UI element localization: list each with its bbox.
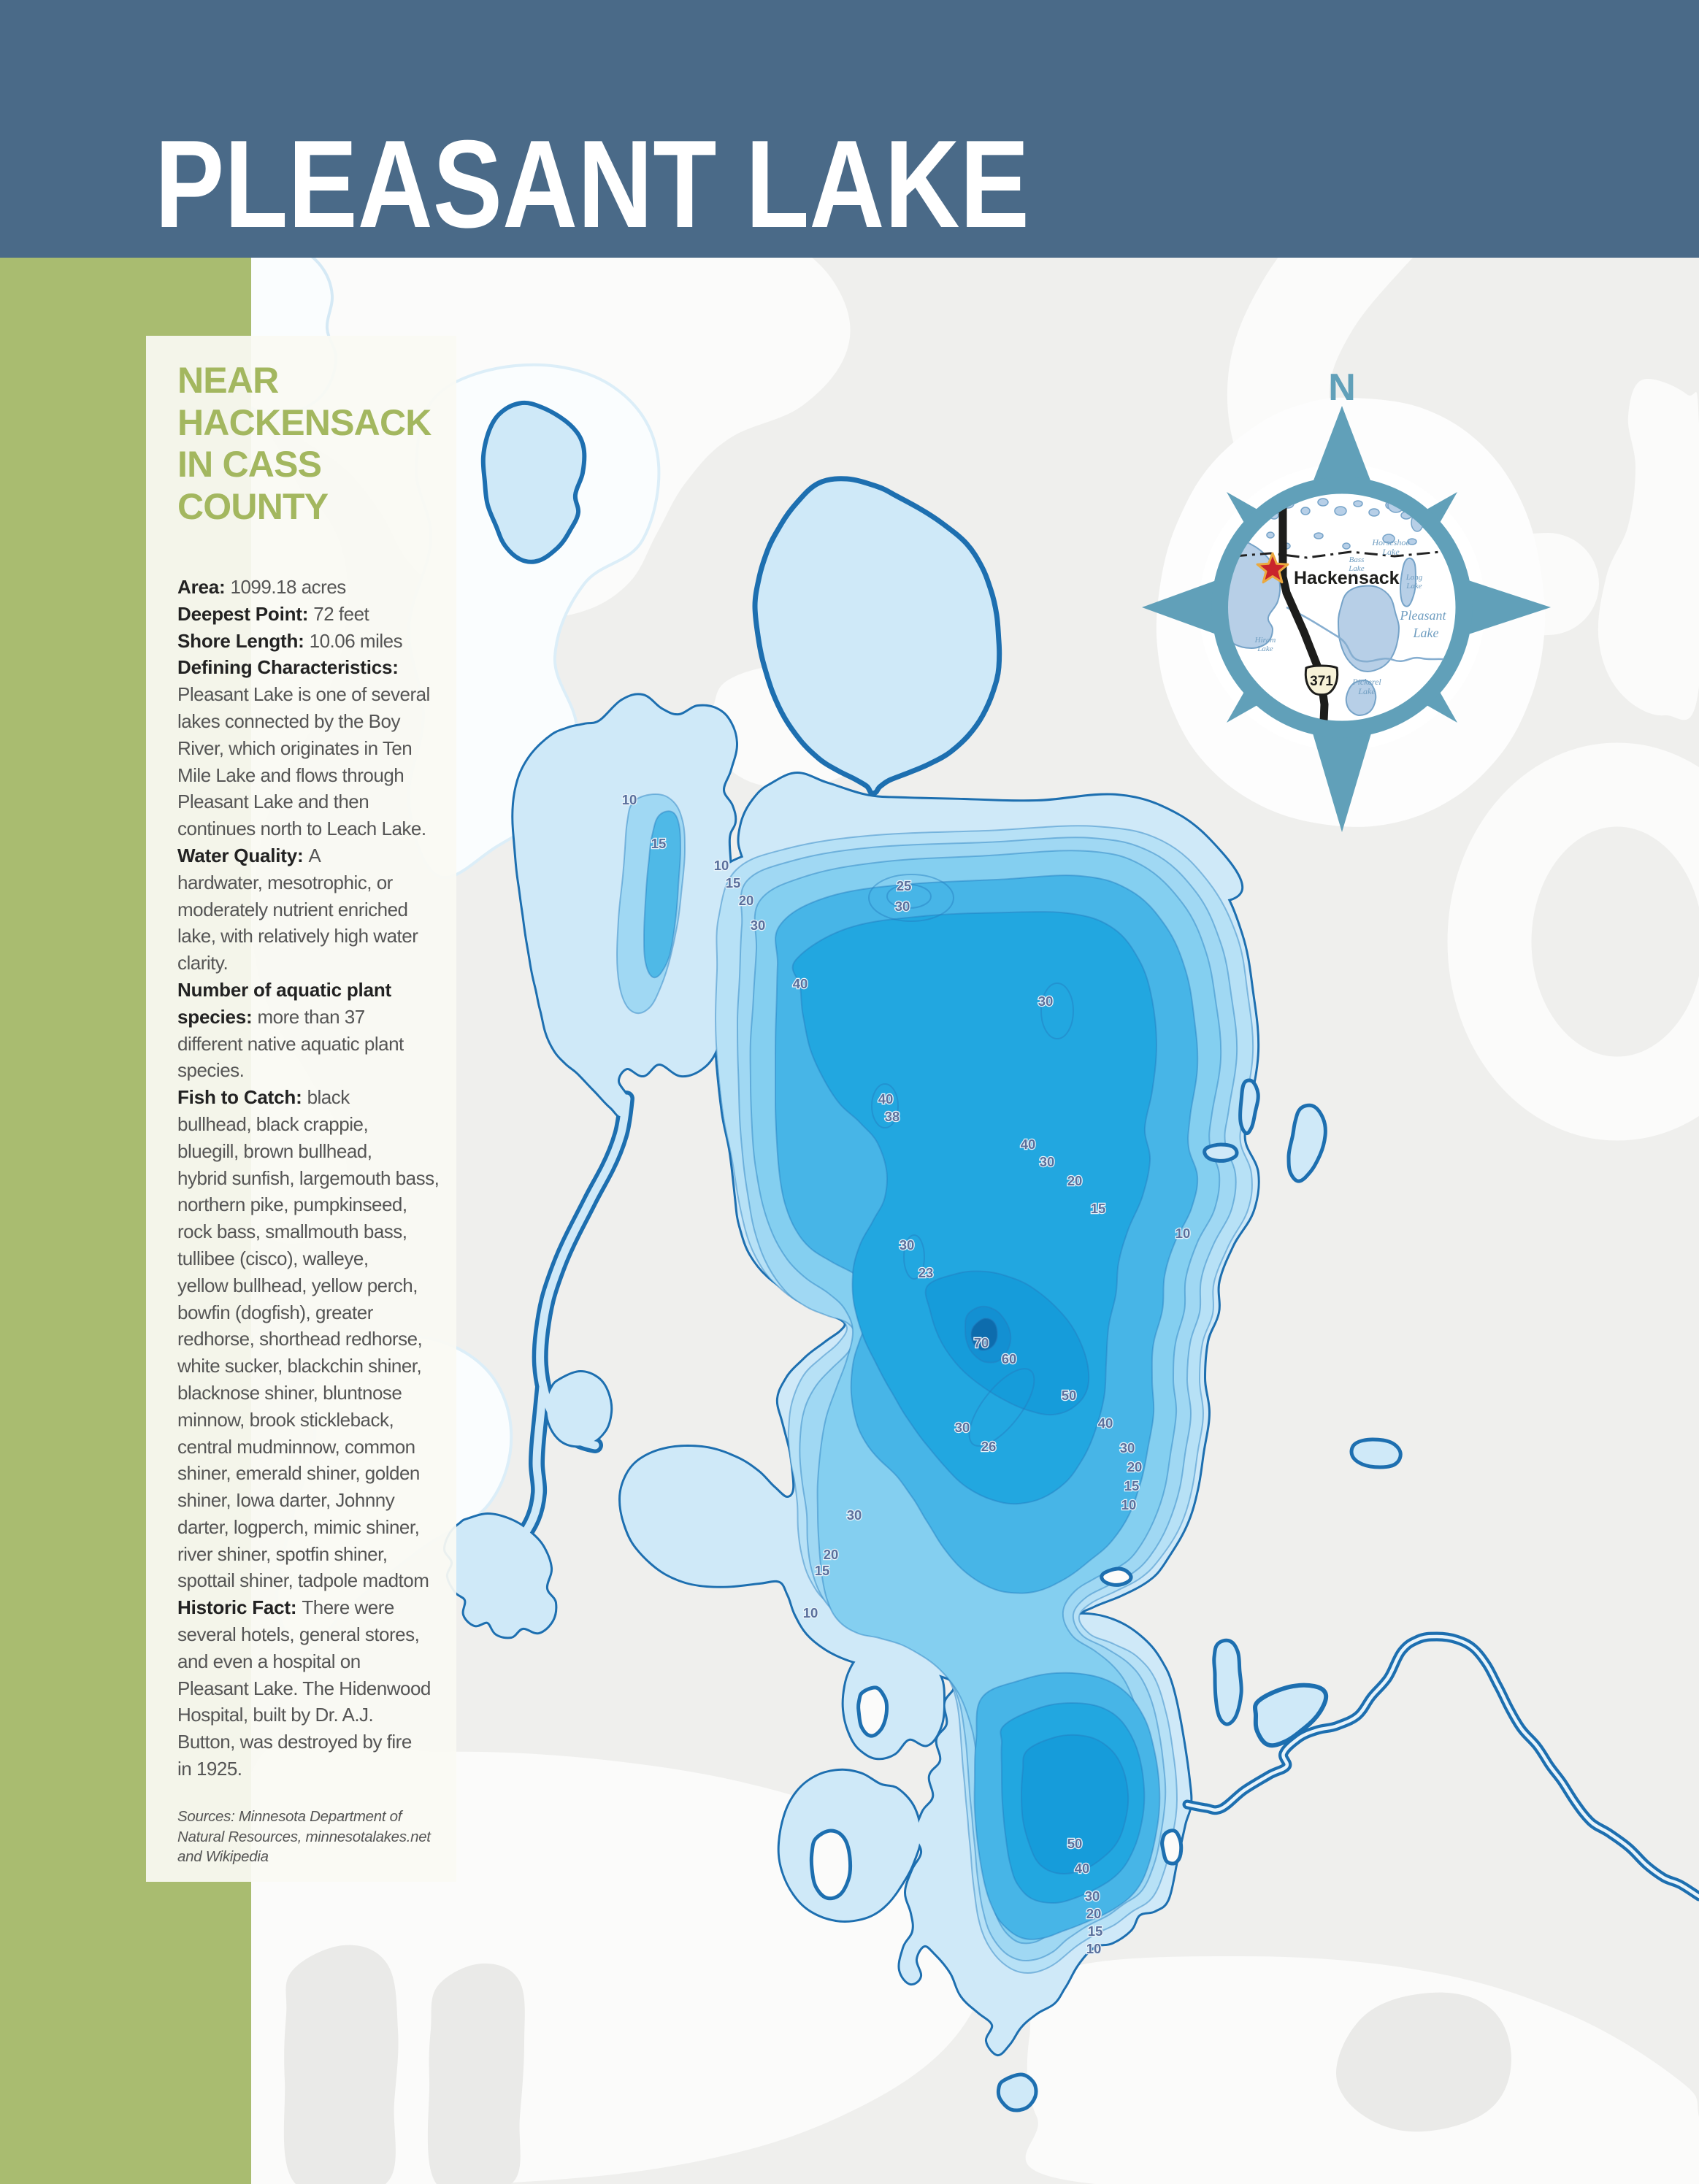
svg-text:10: 10 bbox=[1176, 1226, 1191, 1241]
svg-text:38: 38 bbox=[885, 1109, 900, 1124]
svg-text:40: 40 bbox=[793, 976, 808, 991]
svg-text:Hackensack: Hackensack bbox=[1294, 568, 1400, 588]
svg-text:Horseshoe: Horseshoe bbox=[1371, 537, 1410, 547]
svg-text:30: 30 bbox=[1038, 993, 1054, 1009]
svg-text:30: 30 bbox=[900, 1237, 915, 1253]
svg-text:70: 70 bbox=[974, 1335, 989, 1350]
svg-text:26: 26 bbox=[981, 1439, 997, 1454]
svg-text:10: 10 bbox=[803, 1605, 818, 1620]
svg-text:10: 10 bbox=[714, 858, 729, 873]
svg-text:20: 20 bbox=[1067, 1173, 1083, 1188]
svg-text:10: 10 bbox=[1086, 1941, 1102, 1956]
svg-text:30: 30 bbox=[1085, 1888, 1100, 1904]
svg-text:15: 15 bbox=[1091, 1201, 1106, 1216]
svg-text:30: 30 bbox=[847, 1507, 862, 1523]
svg-text:10: 10 bbox=[1121, 1497, 1137, 1512]
svg-text:50: 50 bbox=[1067, 1836, 1083, 1851]
svg-text:25: 25 bbox=[897, 878, 912, 893]
svg-text:40: 40 bbox=[1075, 1861, 1090, 1876]
svg-text:20: 20 bbox=[824, 1547, 839, 1562]
svg-text:371: 371 bbox=[1310, 674, 1333, 689]
svg-text:15: 15 bbox=[1124, 1478, 1140, 1493]
svg-text:15: 15 bbox=[815, 1563, 830, 1578]
svg-text:30: 30 bbox=[955, 1420, 970, 1435]
svg-text:15: 15 bbox=[726, 875, 741, 891]
svg-text:Hiram: Hiram bbox=[1254, 636, 1276, 645]
svg-text:23: 23 bbox=[918, 1265, 934, 1280]
svg-text:40: 40 bbox=[1021, 1137, 1036, 1152]
svg-text:30: 30 bbox=[751, 918, 766, 933]
svg-text:Lake: Lake bbox=[1405, 582, 1422, 591]
svg-text:Lake: Lake bbox=[1257, 645, 1273, 653]
svg-text:30: 30 bbox=[1120, 1440, 1135, 1456]
svg-text:Lake: Lake bbox=[1381, 547, 1400, 557]
svg-text:20: 20 bbox=[1127, 1459, 1143, 1474]
svg-text:60: 60 bbox=[1002, 1351, 1017, 1366]
svg-text:15: 15 bbox=[651, 836, 667, 851]
svg-text:20: 20 bbox=[1086, 1906, 1102, 1921]
svg-text:15: 15 bbox=[1088, 1923, 1103, 1939]
svg-text:Bass: Bass bbox=[1349, 555, 1365, 564]
svg-text:Long: Long bbox=[1405, 573, 1423, 582]
svg-text:Pickerel: Pickerel bbox=[1351, 677, 1381, 687]
svg-text:Lake: Lake bbox=[1348, 564, 1365, 573]
svg-text:20: 20 bbox=[739, 893, 754, 908]
svg-text:30: 30 bbox=[1040, 1154, 1055, 1169]
svg-text:30: 30 bbox=[895, 899, 910, 914]
svg-text:Pleasant: Pleasant bbox=[1400, 608, 1447, 623]
svg-text:10: 10 bbox=[622, 792, 637, 807]
svg-text:N: N bbox=[1328, 366, 1356, 409]
svg-text:40: 40 bbox=[878, 1091, 894, 1107]
svg-text:Lake: Lake bbox=[1413, 626, 1439, 640]
svg-text:50: 50 bbox=[1062, 1388, 1077, 1403]
svg-text:40: 40 bbox=[1098, 1415, 1113, 1431]
svg-text:Lake: Lake bbox=[1357, 686, 1376, 696]
